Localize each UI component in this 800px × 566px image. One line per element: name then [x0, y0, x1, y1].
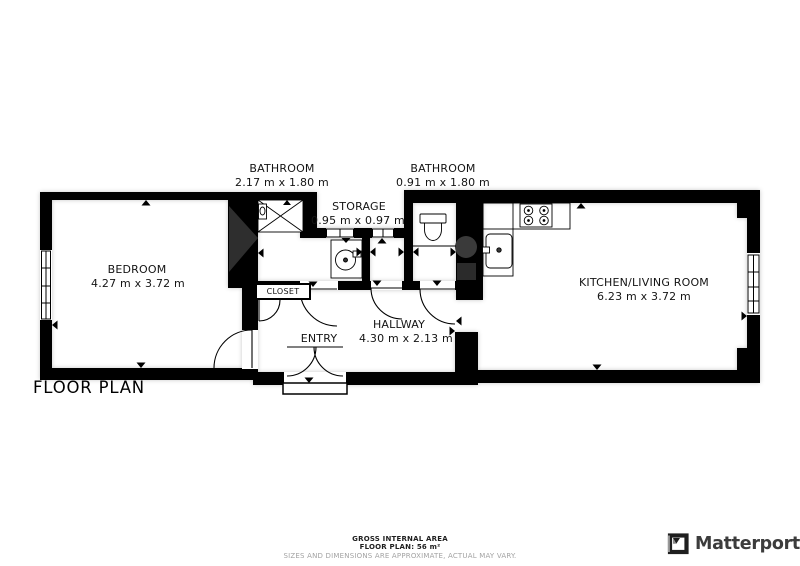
- toilet-icon: [413, 214, 456, 246]
- floor-plan-page: BATHROOM 2.17 m x 1.80 m BATHROOM 0.91 m…: [0, 0, 800, 566]
- shower-icon: [258, 200, 303, 232]
- entry-step: [283, 383, 347, 394]
- window-lightwell-1: [327, 229, 354, 237]
- bedroom-dimensions: 4.27 m x 3.72 m: [91, 278, 185, 289]
- kitchen-living-dimensions: 6.23 m x 3.72 m: [597, 291, 691, 302]
- boiler-icon: [455, 236, 477, 258]
- brand-name: Matterport: [695, 534, 800, 554]
- stove-icon: [520, 204, 552, 227]
- kitchen-sink-icon: [483, 234, 513, 268]
- bathroom-1-label: BATHROOM: [249, 163, 314, 174]
- window-bedroom: [42, 251, 51, 319]
- hallway-label: HALLWAY: [373, 319, 425, 330]
- bathroom-2-label: BATHROOM: [410, 163, 475, 174]
- hallway-dimensions: 4.30 m x 2.13 m: [359, 333, 453, 344]
- storage-dimensions: 0.95 m x 0.97 m: [311, 215, 405, 226]
- door-bathroom-2: [420, 289, 455, 324]
- door-entry-double: [287, 347, 343, 376]
- bathroom-2-dimensions: 0.91 m x 1.80 m: [396, 177, 490, 188]
- brand-logo: Matterport: [666, 531, 800, 556]
- window-lightwell-2: [373, 229, 394, 237]
- door-storage: [371, 288, 402, 319]
- bedroom-label: BEDROOM: [108, 264, 167, 275]
- closet-label: CLOSET: [255, 283, 311, 300]
- matterport-logo-icon: [666, 531, 690, 556]
- storage-label: STORAGE: [332, 201, 386, 212]
- door-closet: [259, 300, 280, 321]
- page-title: FLOOR PLAN: [33, 378, 145, 397]
- kitchen-living-label: KITCHEN/LIVING ROOM: [579, 277, 709, 288]
- entry-label: ENTRY: [301, 333, 338, 344]
- bathroom-1-dimensions: 2.17 m x 1.80 m: [235, 177, 329, 188]
- washing-machine-icon: [331, 240, 362, 278]
- window-kitchen: [748, 255, 759, 313]
